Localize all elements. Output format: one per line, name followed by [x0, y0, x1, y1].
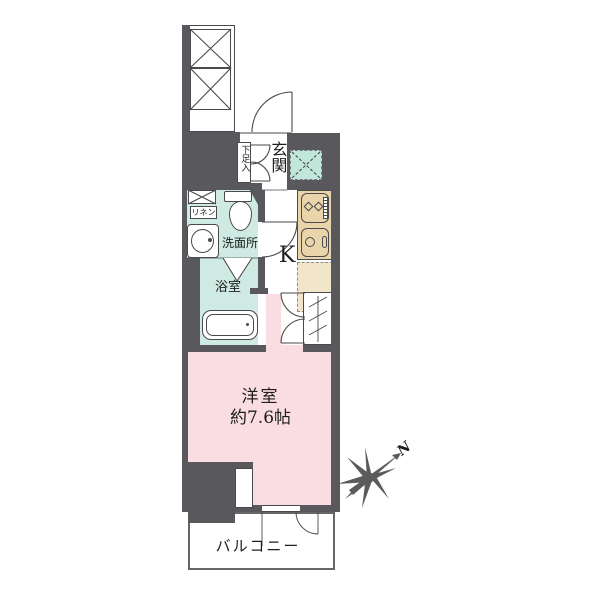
compass-icon	[337, 447, 401, 508]
wall-segment	[182, 25, 190, 132]
pipe-shaft-box	[235, 468, 253, 508]
wall-block	[188, 468, 235, 523]
stove-grill-icon	[323, 197, 328, 219]
linen-label: リネン	[190, 208, 217, 217]
bathtub-drain-icon	[246, 323, 249, 326]
kitchen-label: K	[279, 243, 295, 268]
balcony-window	[262, 505, 300, 512]
wall-segment	[182, 132, 240, 190]
room-label: 洋室	[188, 388, 333, 408]
bathroom-label: 浴室	[206, 281, 250, 296]
main-room-entry	[266, 294, 281, 345]
wall-segment	[287, 180, 340, 190]
room-size-label: 約7.6帖	[188, 409, 333, 429]
washbasin-tap-icon	[208, 238, 212, 242]
closet	[303, 292, 333, 345]
shaft-x-box	[190, 29, 231, 68]
wall-segment	[250, 288, 268, 294]
wall-segment	[287, 133, 340, 150]
wall-segment	[303, 345, 340, 352]
pipe-space-box	[188, 190, 216, 204]
washroom-label: 洗面所	[218, 237, 262, 251]
wall-segment	[287, 150, 290, 180]
wall-segment	[182, 258, 200, 345]
genkan-label: 玄関	[268, 141, 286, 189]
shaft-x-box	[190, 68, 231, 110]
kitchen-sink-drain-icon	[305, 237, 315, 247]
north-label: N	[394, 439, 414, 460]
wall-segment	[300, 505, 340, 512]
meter-box	[290, 150, 322, 180]
floor-plan: 玄関 下足入 リネン 洗面所 浴室 K 洋室 約7.6帖 バルコニー N	[0, 0, 600, 600]
kitchen-faucet-icon	[322, 236, 327, 248]
entrance-door-arc	[240, 92, 292, 133]
shoe-cabinet-label: 下足入	[239, 145, 249, 183]
wall-segment	[258, 257, 265, 292]
balcony-label: バルコニー	[188, 538, 328, 555]
wall-segment	[182, 345, 266, 352]
